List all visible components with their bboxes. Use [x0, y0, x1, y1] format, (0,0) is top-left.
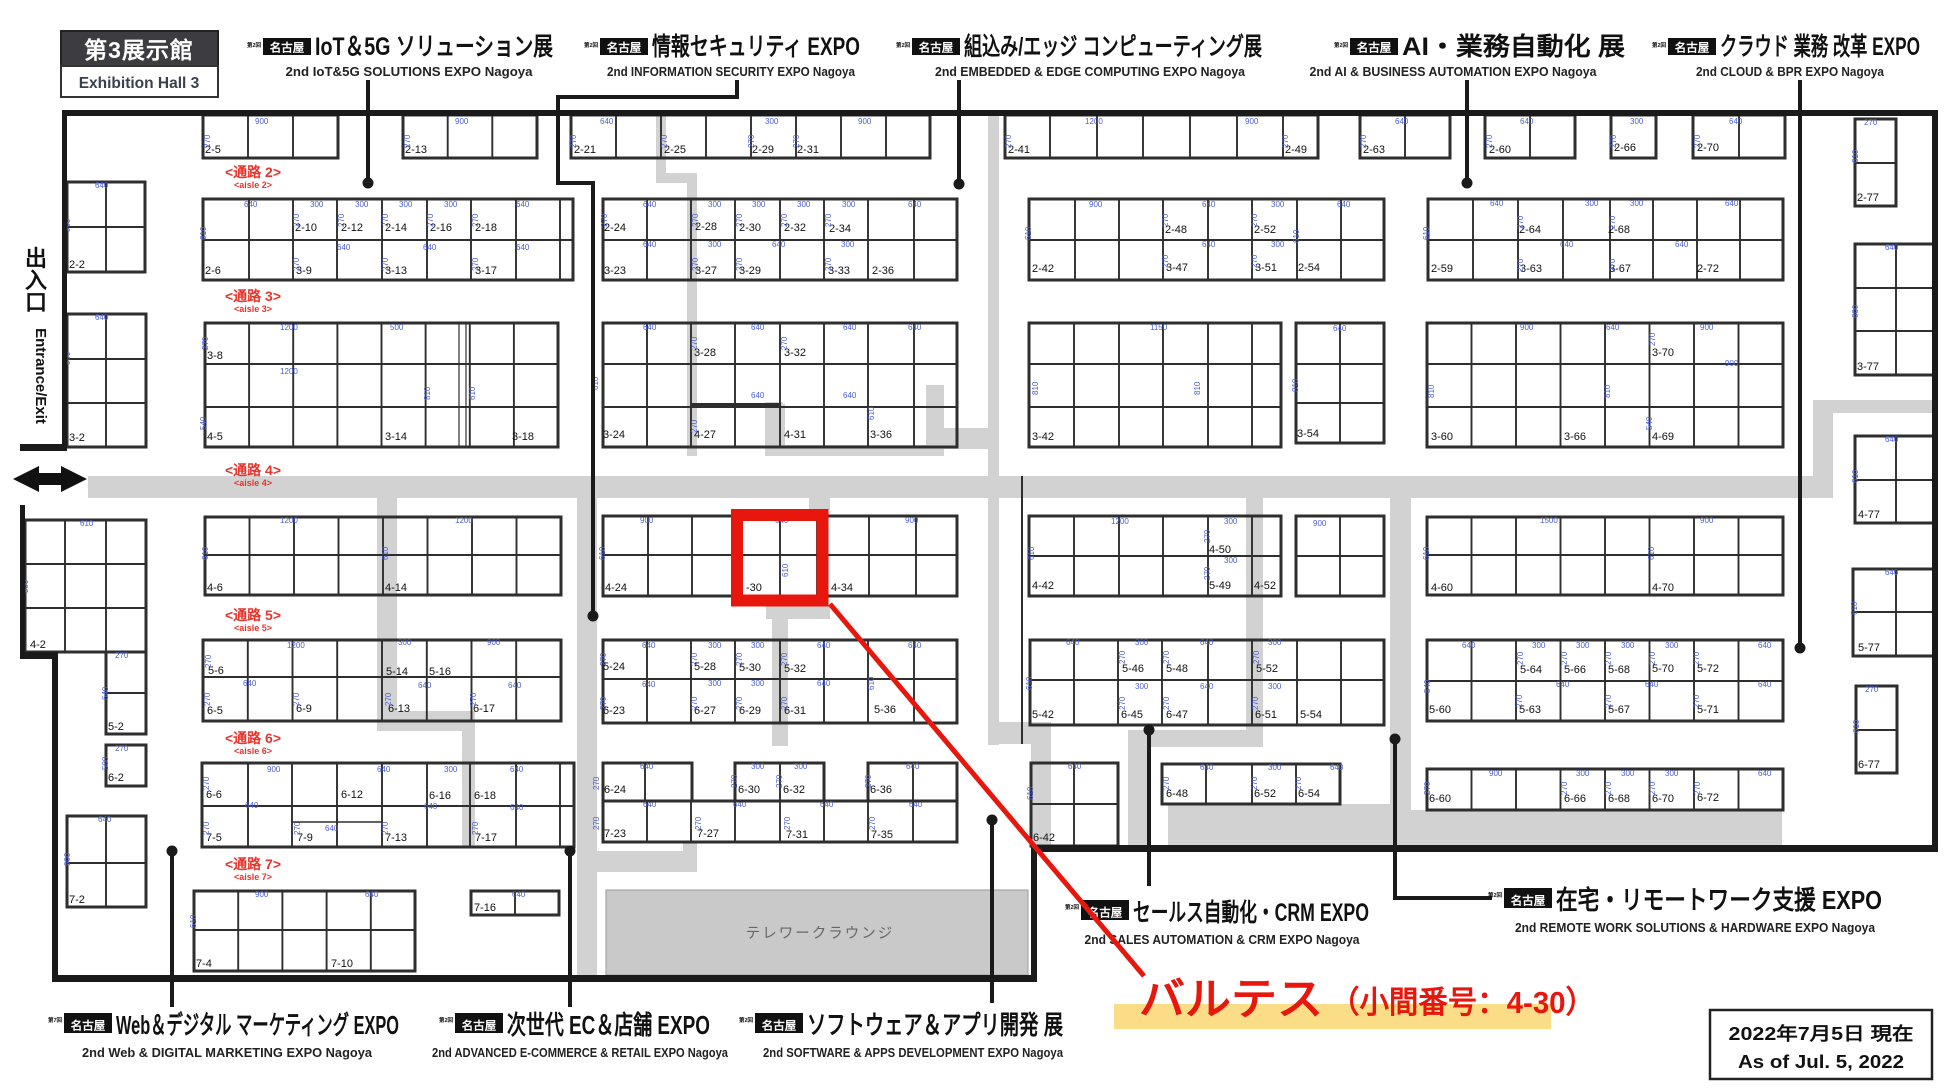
svg-text:Entrance/Exit: Entrance/Exit: [32, 328, 49, 424]
svg-text:610: 610: [201, 546, 210, 560]
svg-text:640: 640: [95, 181, 109, 190]
svg-text:900: 900: [1700, 323, 1714, 332]
svg-text:640: 640: [1490, 199, 1504, 208]
svg-text:640: 640: [516, 243, 530, 252]
svg-text:640: 640: [1066, 638, 1080, 647]
svg-text:<通路 3>: <通路 3>: [225, 288, 281, 304]
svg-text:3-70: 3-70: [1652, 347, 1674, 359]
svg-text:640: 640: [243, 679, 257, 688]
svg-text:270: 270: [599, 652, 608, 666]
svg-text:270: 270: [1203, 566, 1212, 580]
svg-text:600: 600: [1851, 304, 1860, 318]
svg-text:640: 640: [817, 641, 831, 650]
svg-text:1200: 1200: [280, 367, 298, 376]
svg-text:500: 500: [101, 756, 110, 770]
svg-text:270: 270: [599, 696, 608, 710]
svg-text:640: 640: [337, 243, 351, 252]
svg-text:270: 270: [115, 744, 129, 753]
svg-text:270: 270: [1865, 685, 1879, 694]
svg-text:300: 300: [310, 200, 324, 209]
svg-text:第7回: 第7回: [48, 1016, 63, 1024]
svg-text:640: 640: [908, 641, 922, 650]
svg-text:640: 640: [1560, 240, 1574, 249]
svg-text:270: 270: [381, 213, 390, 227]
svg-text:270: 270: [1604, 651, 1613, 665]
svg-text:270: 270: [792, 134, 801, 148]
svg-text:AI・業務自動化 展: AI・業務自動化 展: [1402, 33, 1625, 61]
svg-text:300: 300: [1224, 517, 1238, 526]
svg-text:610: 610: [598, 546, 607, 560]
svg-text:270: 270: [426, 213, 435, 227]
svg-text:270: 270: [1608, 215, 1617, 229]
svg-text:<通路 6>: <通路 6>: [225, 730, 281, 746]
svg-text:1200: 1200: [280, 516, 298, 525]
svg-text:5-60: 5-60: [1429, 704, 1451, 716]
svg-text:1200: 1200: [287, 641, 305, 650]
svg-text:270: 270: [1294, 776, 1303, 790]
svg-text:3-18: 3-18: [512, 431, 534, 443]
svg-text:610: 610: [1422, 226, 1431, 240]
svg-text:3-24: 3-24: [603, 429, 625, 441]
svg-text:第2回: 第2回: [439, 1016, 454, 1024]
svg-text:270: 270: [780, 652, 789, 666]
svg-text:270: 270: [1604, 694, 1613, 708]
svg-text:270: 270: [292, 213, 301, 227]
svg-text:610: 610: [781, 563, 790, 577]
svg-text:3-8: 3-8: [207, 350, 223, 362]
svg-text:270: 270: [1252, 650, 1261, 664]
svg-text:6-2: 6-2: [108, 772, 124, 784]
svg-text:610: 610: [1422, 546, 1431, 560]
svg-text:<aisle 3>: <aisle 3>: [234, 304, 272, 314]
svg-text:名古屋: 名古屋: [1357, 41, 1392, 55]
svg-text:270: 270: [569, 134, 578, 148]
svg-text:（小間番号：4-30）: （小間番号：4-30）: [1330, 985, 1595, 1020]
svg-text:第2回: 第2回: [584, 41, 599, 49]
svg-text:640: 640: [508, 681, 522, 690]
svg-text:270: 270: [735, 257, 744, 271]
svg-text:1200: 1200: [1111, 517, 1129, 526]
svg-text:270: 270: [1693, 134, 1702, 148]
svg-text:2-42: 2-42: [1032, 263, 1054, 275]
svg-text:900: 900: [63, 852, 72, 866]
svg-text:270: 270: [690, 652, 699, 666]
svg-text:3-66: 3-66: [1564, 431, 1586, 443]
svg-text:640: 640: [365, 890, 379, 899]
svg-text:640: 640: [643, 240, 657, 249]
svg-text:270: 270: [1516, 651, 1525, 665]
svg-text:610: 610: [1024, 226, 1033, 240]
svg-text:第2回: 第2回: [739, 1016, 754, 1024]
svg-text:270: 270: [660, 134, 669, 148]
svg-text:4-60: 4-60: [1431, 582, 1453, 594]
svg-text:270: 270: [1250, 776, 1259, 790]
svg-text:300: 300: [1576, 641, 1590, 650]
svg-text:ソフトウェア＆アプリ開発 展: ソフトウェア＆アプリ開発 展: [807, 1010, 1063, 1040]
svg-text:810: 810: [1291, 378, 1300, 392]
svg-text:5-42: 5-42: [1032, 709, 1054, 721]
svg-text:270: 270: [1118, 696, 1127, 710]
svg-text:270: 270: [824, 257, 833, 271]
svg-text:270: 270: [691, 213, 700, 227]
svg-text:810: 810: [1031, 381, 1040, 395]
svg-text:4-24: 4-24: [605, 582, 627, 594]
svg-text:300: 300: [751, 679, 765, 688]
svg-text:1500: 1500: [1540, 516, 1558, 525]
svg-text:270: 270: [1648, 781, 1657, 795]
svg-text:640: 640: [1885, 435, 1899, 444]
svg-text:270: 270: [202, 821, 211, 835]
svg-text:640: 640: [643, 200, 657, 209]
svg-text:2nd INFORMATION SECURITY EXPO: 2nd INFORMATION SECURITY EXPO Nagoya: [607, 65, 856, 79]
svg-text:6-36: 6-36: [870, 784, 892, 796]
svg-text:3-36: 3-36: [870, 429, 892, 441]
svg-text:270: 270: [471, 257, 480, 271]
svg-text:4-69: 4-69: [1652, 431, 1674, 443]
svg-text:第2回: 第2回: [247, 41, 262, 49]
svg-text:270: 270: [1516, 258, 1525, 272]
svg-text:640: 640: [642, 680, 656, 689]
svg-text:300: 300: [444, 200, 458, 209]
svg-text:640: 640: [1462, 641, 1476, 650]
svg-text:640: 640: [1885, 243, 1899, 252]
svg-text:900: 900: [455, 117, 469, 126]
svg-text:5-49: 5-49: [1209, 580, 1231, 592]
svg-text:500: 500: [390, 323, 404, 332]
svg-text:名古屋: 名古屋: [270, 41, 305, 55]
svg-text:640: 640: [1758, 769, 1772, 778]
svg-text:900: 900: [1245, 117, 1259, 126]
svg-text:270: 270: [471, 821, 480, 835]
svg-text:640: 640: [1337, 200, 1351, 209]
svg-text:640: 640: [843, 391, 857, 400]
svg-text:300: 300: [751, 641, 765, 650]
svg-text:7-10: 7-10: [331, 958, 353, 970]
svg-text:3-14: 3-14: [385, 431, 407, 443]
svg-text:情報セキュリティ EXPO: 情報セキュリティ EXPO: [652, 33, 860, 61]
svg-text:7-4: 7-4: [196, 958, 212, 970]
svg-text:270: 270: [1692, 651, 1701, 665]
svg-text:2nd EMBEDDED & EDGE COMPUTING: 2nd EMBEDDED & EDGE COMPUTING EXPO Nagoy…: [935, 65, 1246, 79]
svg-text:270: 270: [1203, 529, 1212, 543]
svg-text:2-36: 2-36: [872, 265, 894, 277]
svg-text:270: 270: [780, 336, 789, 350]
svg-text:2-72: 2-72: [1697, 263, 1719, 275]
svg-text:640: 640: [843, 323, 857, 332]
svg-text:第3展示館: 第3展示館: [84, 37, 194, 63]
svg-text:270: 270: [694, 816, 703, 830]
svg-text:640: 640: [640, 762, 654, 771]
svg-text:270: 270: [203, 134, 212, 148]
svg-text:270: 270: [690, 336, 699, 350]
svg-text:<通路 5>: <通路 5>: [225, 607, 281, 623]
svg-text:270: 270: [735, 652, 744, 666]
svg-text:300: 300: [708, 641, 722, 650]
svg-text:270: 270: [690, 419, 699, 433]
svg-text:6-24: 6-24: [604, 784, 626, 796]
svg-text:300: 300: [1268, 638, 1282, 647]
svg-text:4-77: 4-77: [1858, 509, 1880, 521]
svg-text:6-42: 6-42: [1033, 832, 1055, 844]
svg-text:610: 610: [1647, 546, 1656, 560]
svg-text:270: 270: [1162, 650, 1171, 664]
svg-text:640: 640: [418, 681, 432, 690]
svg-text:540: 540: [1645, 416, 1654, 430]
svg-text:640: 640: [1675, 240, 1689, 249]
svg-text:6-12: 6-12: [341, 789, 363, 801]
svg-text:270: 270: [381, 821, 390, 835]
svg-text:-30: -30: [746, 582, 762, 594]
svg-text:270: 270: [864, 774, 873, 788]
svg-text:270: 270: [1423, 781, 1432, 795]
svg-text:名古屋: 名古屋: [1511, 894, 1546, 908]
svg-text:1150: 1150: [1150, 323, 1168, 332]
svg-text:第2回: 第2回: [1065, 903, 1080, 911]
svg-text:640: 640: [1520, 117, 1534, 126]
svg-text:640: 640: [772, 240, 786, 249]
svg-text:2022年7月5日 現在: 2022年7月5日 現在: [1729, 1023, 1914, 1044]
svg-text:300: 300: [841, 240, 855, 249]
svg-text:300: 300: [1576, 769, 1590, 778]
svg-text:4-5: 4-5: [207, 431, 223, 443]
svg-text:4-52: 4-52: [1254, 580, 1276, 592]
svg-text:640: 640: [1729, 117, 1743, 126]
svg-text:組込み/エッジ コンピューティング展: 組込み/エッジ コンピューティング展: [964, 32, 1262, 61]
svg-text:610: 610: [381, 546, 390, 560]
svg-text:540: 540: [1423, 679, 1432, 693]
svg-text:300: 300: [1665, 641, 1679, 650]
svg-text:270: 270: [202, 776, 211, 790]
svg-text:640: 640: [1606, 323, 1620, 332]
svg-text:900: 900: [640, 516, 654, 525]
svg-text:270: 270: [1161, 254, 1170, 268]
svg-text:270: 270: [384, 692, 393, 706]
svg-text:270: 270: [600, 213, 609, 227]
svg-text:3-42: 3-42: [1032, 431, 1054, 443]
svg-text:5-2: 5-2: [108, 721, 124, 733]
svg-text:640: 640: [751, 391, 765, 400]
svg-text:640: 640: [101, 686, 110, 700]
svg-text:270: 270: [1692, 694, 1701, 708]
svg-text:4-6: 4-6: [207, 582, 223, 594]
svg-text:640: 640: [1395, 117, 1409, 126]
svg-text:300: 300: [751, 762, 765, 771]
svg-text:300: 300: [1135, 682, 1149, 691]
svg-text:270: 270: [471, 213, 480, 227]
svg-text:300: 300: [1271, 200, 1285, 209]
svg-text:270: 270: [1648, 651, 1657, 665]
svg-text:300: 300: [1585, 199, 1599, 208]
svg-text:6-30: 6-30: [738, 784, 760, 796]
svg-text:900: 900: [905, 516, 919, 525]
svg-text:270: 270: [1648, 332, 1657, 346]
svg-text:名古屋: 名古屋: [607, 41, 642, 55]
svg-text:テレワークラウンジ: テレワークラウンジ: [746, 925, 895, 942]
svg-text:1200: 1200: [1085, 117, 1103, 126]
svg-text:次世代 EC＆店舗 EXPO: 次世代 EC＆店舗 EXPO: [507, 1010, 710, 1040]
svg-text:270: 270: [1608, 258, 1617, 272]
svg-text:270: 270: [1162, 776, 1171, 790]
svg-text:810: 810: [1193, 381, 1202, 395]
svg-text:610: 610: [1025, 676, 1034, 690]
svg-text:300: 300: [444, 765, 458, 774]
svg-text:3-23: 3-23: [604, 265, 626, 277]
svg-text:270: 270: [1515, 694, 1524, 708]
svg-text:2nd SALES AUTOMATION & CRM EXP: 2nd SALES AUTOMATION & CRM EXPO Nagoya: [1085, 933, 1361, 947]
svg-text:640: 640: [817, 679, 831, 688]
svg-text:270: 270: [690, 696, 699, 710]
svg-text:2-54: 2-54: [1298, 262, 1320, 274]
svg-text:2nd AI & BUSINESS AUTOMATION E: 2nd AI & BUSINESS AUTOMATION EXPO Nagoya: [1310, 65, 1598, 79]
svg-text:270: 270: [780, 696, 789, 710]
svg-text:640: 640: [1068, 762, 1082, 771]
svg-text:5-77: 5-77: [1858, 642, 1880, 654]
svg-text:270: 270: [735, 213, 744, 227]
svg-text:270: 270: [1004, 134, 1013, 148]
svg-text:270: 270: [691, 257, 700, 271]
svg-text:540: 540: [199, 416, 208, 430]
svg-text:2nd IoT&5G SOLUTIONS EXPO Nago: 2nd IoT&5G SOLUTIONS EXPO Nagoya: [286, 65, 534, 79]
svg-text:300: 300: [752, 200, 766, 209]
svg-text:5-14: 5-14: [386, 666, 408, 678]
svg-text:300: 300: [1268, 763, 1282, 772]
svg-text:640: 640: [600, 117, 614, 126]
svg-text:300: 300: [708, 240, 722, 249]
svg-text:4-14: 4-14: [385, 582, 407, 594]
svg-text:270: 270: [868, 816, 877, 830]
svg-text:4-50: 4-50: [1209, 544, 1231, 556]
svg-text:900: 900: [858, 117, 872, 126]
svg-text:270: 270: [1162, 696, 1171, 710]
svg-text:4-42: 4-42: [1032, 580, 1054, 592]
svg-text:名古屋: 名古屋: [1675, 41, 1710, 55]
svg-text:<通路 7>: <通路 7>: [225, 856, 281, 872]
svg-text:300: 300: [842, 200, 856, 209]
svg-text:270: 270: [1864, 118, 1878, 127]
svg-text:セールス自動化・CRM EXPO: セールス自動化・CRM EXPO: [1133, 899, 1369, 927]
svg-text:6-60: 6-60: [1429, 793, 1451, 805]
svg-text:640: 640: [1885, 568, 1899, 577]
svg-text:300: 300: [1532, 641, 1546, 650]
svg-text:640: 640: [908, 200, 922, 209]
svg-text:1200: 1200: [280, 323, 298, 332]
svg-text:5-16: 5-16: [429, 666, 451, 678]
svg-text:610: 610: [189, 914, 198, 928]
svg-text:610: 610: [199, 226, 208, 240]
svg-text:300: 300: [1621, 769, 1635, 778]
svg-text:640: 640: [643, 323, 657, 332]
svg-text:2-2: 2-2: [69, 259, 85, 271]
svg-text:6-32: 6-32: [783, 784, 805, 796]
svg-text:640: 640: [1200, 763, 1214, 772]
svg-text:610: 610: [1292, 229, 1301, 243]
svg-text:610: 610: [1850, 601, 1859, 615]
svg-text:270: 270: [292, 692, 301, 706]
svg-text:270: 270: [403, 134, 412, 148]
svg-text:640: 640: [516, 200, 530, 209]
svg-text:<aisle 5>: <aisle 5>: [234, 623, 272, 633]
svg-text:610: 610: [468, 386, 477, 400]
svg-text:610: 610: [80, 519, 94, 528]
svg-text:640: 640: [1202, 240, 1216, 249]
svg-text:900: 900: [1313, 519, 1327, 528]
svg-text:第2回: 第2回: [896, 41, 911, 49]
svg-text:300: 300: [399, 200, 413, 209]
svg-text:バルテス: バルテス: [1139, 975, 1323, 1024]
svg-text:270: 270: [1485, 134, 1494, 148]
svg-text:640: 640: [244, 200, 258, 209]
svg-text:270: 270: [1161, 213, 1170, 227]
svg-text:300: 300: [797, 200, 811, 209]
svg-text:270: 270: [1604, 781, 1613, 795]
svg-text:270: 270: [292, 257, 301, 271]
svg-text:270: 270: [115, 651, 129, 660]
svg-text:名古屋: 名古屋: [462, 1019, 497, 1033]
svg-text:640: 640: [1645, 680, 1659, 689]
svg-text:270: 270: [1560, 651, 1569, 665]
svg-text:7-2: 7-2: [69, 894, 85, 906]
svg-text:270: 270: [780, 213, 789, 227]
svg-text:270: 270: [592, 776, 601, 790]
svg-text:270: 270: [730, 774, 739, 788]
svg-text:900: 900: [255, 890, 269, 899]
svg-text:IoT＆5G ソリューション展: IoT＆5G ソリューション展: [315, 33, 553, 61]
svg-text:640: 640: [906, 762, 920, 771]
svg-text:口: 口: [25, 290, 47, 315]
svg-text:在宅・リモートワーク支援 EXPO: 在宅・リモートワーク支援 EXPO: [1556, 885, 1882, 915]
svg-text:640: 640: [325, 824, 339, 833]
svg-text:5-54: 5-54: [1300, 709, 1322, 721]
svg-text:6-18: 6-18: [474, 790, 496, 802]
svg-text:300: 300: [1630, 199, 1644, 208]
svg-text:270: 270: [469, 692, 478, 706]
svg-text:<aisle 6>: <aisle 6>: [234, 746, 272, 756]
svg-text:270: 270: [1250, 254, 1259, 268]
svg-text:640: 640: [1330, 763, 1344, 772]
svg-text:610: 610: [1852, 719, 1861, 733]
svg-text:640: 640: [245, 801, 259, 810]
svg-text:3-2: 3-2: [69, 432, 85, 444]
svg-text:640: 640: [751, 323, 765, 332]
svg-text:640: 640: [377, 765, 391, 774]
svg-text:270: 270: [1359, 134, 1368, 148]
svg-text:2nd REMOTE WORK SOLUTIONS & HA: 2nd REMOTE WORK SOLUTIONS & HARDWARE EXP…: [1515, 921, 1876, 935]
svg-text:640: 640: [512, 890, 526, 899]
svg-text:640: 640: [1556, 680, 1570, 689]
svg-text:270: 270: [735, 696, 744, 710]
svg-text:270: 270: [1250, 213, 1259, 227]
svg-text:270: 270: [293, 821, 302, 835]
svg-text:<aisle 4>: <aisle 4>: [234, 478, 272, 488]
svg-text:270: 270: [824, 213, 833, 227]
svg-text:<aisle 2>: <aisle 2>: [234, 180, 272, 190]
svg-text:640: 640: [908, 323, 922, 332]
svg-text:7-23: 7-23: [604, 828, 626, 840]
svg-text:300: 300: [1621, 641, 1635, 650]
svg-text:<aisle 7>: <aisle 7>: [234, 872, 272, 882]
svg-text:640: 640: [424, 802, 438, 811]
svg-text:640: 640: [1333, 324, 1347, 333]
svg-text:6-16: 6-16: [429, 790, 451, 802]
svg-text:300: 300: [1271, 240, 1285, 249]
svg-text:270: 270: [783, 816, 792, 830]
svg-text:1200: 1200: [455, 516, 473, 525]
svg-text:<通路 4>: <通路 4>: [225, 462, 281, 478]
svg-text:610: 610: [1851, 149, 1860, 163]
svg-text:Exhibition Hall 3: Exhibition Hall 3: [79, 75, 200, 92]
svg-text:300: 300: [398, 638, 412, 647]
svg-text:第2回: 第2回: [1334, 41, 1349, 49]
